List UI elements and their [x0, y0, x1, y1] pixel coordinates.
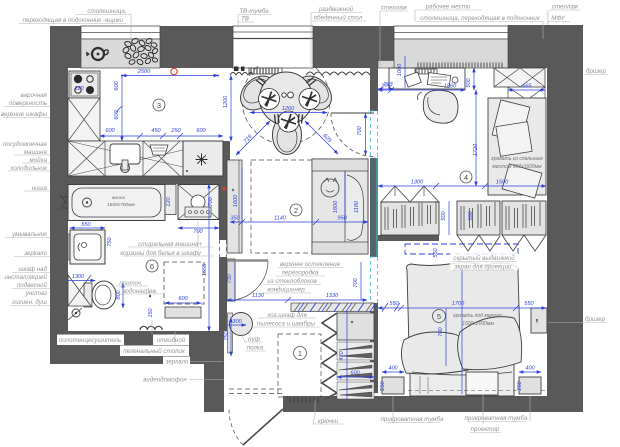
svg-text:1140: 1140 [274, 216, 287, 222]
svg-text:обеденный стол: обеденный стол [314, 15, 363, 22]
svg-text:видеодомофон: видеодомофон [143, 377, 187, 384]
svg-text:665: 665 [522, 84, 532, 90]
svg-text:250: 250 [380, 380, 386, 391]
svg-text:рабочее место: рабочее место [425, 4, 471, 11]
svg-text:кровать со спальным: кровать со спальным [491, 156, 543, 162]
svg-text:1180: 1180 [354, 200, 360, 213]
svg-text:730: 730 [227, 273, 233, 283]
svg-text:раздвижной: раздвижной [318, 6, 354, 13]
svg-text:600: 600 [196, 128, 206, 134]
svg-text:ТВ: ТВ [241, 16, 249, 23]
svg-text:700: 700 [193, 229, 203, 235]
svg-text:700: 700 [208, 196, 214, 206]
svg-text:400: 400 [388, 366, 398, 372]
svg-text:пеленальный столик: пеленальный столик [123, 348, 186, 355]
svg-text:прикроватная тумба: прикроватная тумба [465, 415, 528, 422]
svg-text:из стеклоблоков: из стеклоблоков [267, 278, 317, 285]
svg-text:4: 4 [464, 173, 468, 182]
svg-text:700: 700 [353, 277, 359, 287]
svg-text:зеркало: зеркало [165, 359, 189, 366]
svg-text:кровать под матрас: кровать под матрас [453, 313, 503, 319]
svg-text:800: 800 [116, 289, 122, 299]
svg-text:500: 500 [466, 77, 472, 87]
svg-text:шкаф над: шкаф над [18, 266, 47, 273]
svg-text:550: 550 [389, 301, 399, 307]
svg-text:950: 950 [337, 216, 347, 222]
svg-text:600: 600 [105, 128, 115, 134]
svg-text:700: 700 [438, 326, 444, 336]
svg-text:1600х700мм: 1600х700мм [107, 202, 135, 208]
svg-text:300: 300 [232, 319, 242, 325]
svg-text:600: 600 [114, 80, 120, 90]
svg-text:750: 750 [107, 236, 113, 246]
svg-text:6: 6 [150, 262, 154, 271]
svg-text:250: 250 [170, 128, 181, 134]
svg-text:550: 550 [81, 222, 91, 228]
svg-text:верхнее остекление: верхнее остекление [280, 261, 341, 268]
svg-text:откидной: откидной [157, 337, 186, 344]
svg-text:1200: 1200 [223, 95, 229, 108]
svg-text:поверхность: поверхность [9, 100, 47, 107]
svg-text:посудомоечная: посудомоечная [3, 141, 48, 148]
svg-text:450: 450 [151, 128, 161, 134]
svg-text:550: 550 [433, 247, 439, 257]
svg-text:ванна: ванна [112, 196, 125, 201]
svg-text:прикроватная тумба: прикроватная тумба [381, 416, 444, 423]
svg-text:стеллаж: стеллаж [552, 4, 579, 11]
svg-text:275: 275 [380, 84, 391, 90]
svg-text:1555: 1555 [202, 263, 208, 276]
svg-text:перегородка: перегородка [282, 270, 319, 277]
svg-text:2500: 2500 [137, 69, 151, 75]
svg-text:МФУ: МФУ [551, 15, 566, 22]
svg-text:400: 400 [525, 366, 535, 372]
svg-text:1860: 1860 [444, 84, 457, 90]
svg-text:120: 120 [74, 86, 84, 92]
svg-text:600: 600 [350, 371, 360, 377]
svg-text:2: 2 [294, 206, 298, 215]
svg-text:верхние шкафы: верхние шкафы [1, 111, 48, 118]
svg-text:стеллаж: стеллаж [381, 5, 408, 12]
svg-text:550: 550 [524, 301, 534, 307]
svg-text:700: 700 [357, 125, 363, 135]
svg-text:пылесоса и швабры: пылесоса и швабры [257, 321, 315, 328]
svg-text:варочная: варочная [21, 92, 48, 99]
svg-text:умывальник: умывальник [11, 231, 48, 238]
svg-text:350: 350 [230, 216, 240, 222]
svg-text:1300: 1300 [72, 274, 85, 280]
svg-text:1700: 1700 [452, 301, 465, 307]
svg-text:470: 470 [339, 350, 345, 360]
svg-text:полка: полка [247, 345, 264, 352]
svg-text:гигиен. душ: гигиен. душ [12, 299, 48, 306]
svg-text:проектор: проектор [471, 426, 500, 433]
svg-text:бризер: бризер [585, 316, 606, 323]
svg-text:столешница, переходящая в подо: столешница, переходящая в подоконник [420, 15, 541, 22]
svg-text:5: 5 [437, 312, 441, 321]
svg-text:бризер: бризер [586, 68, 607, 75]
svg-text:500: 500 [468, 210, 474, 220]
svg-text:1000: 1000 [397, 63, 403, 76]
svg-text:1500: 1500 [496, 180, 509, 186]
svg-text:600: 600 [114, 109, 120, 119]
svg-text:экран для проекции: экран для проекции [455, 264, 513, 271]
svg-text:250: 250 [517, 380, 523, 391]
svg-text:столешница,: столешница, [87, 8, 126, 15]
svg-text:500: 500 [441, 210, 447, 220]
svg-text:1720: 1720 [473, 143, 479, 156]
svg-text:750: 750 [224, 330, 230, 340]
svg-text:1600: 1600 [333, 200, 339, 213]
svg-text:унитаз: унитаз [25, 290, 47, 297]
svg-text:ТВ-тумба: ТВ-тумба [239, 8, 269, 15]
svg-text:1130: 1130 [252, 293, 265, 299]
svg-text:переходящая в подоконник -ящик: переходящая в подоконник -ящики [23, 17, 124, 24]
svg-text:1260: 1260 [282, 106, 295, 112]
svg-text:1300: 1300 [411, 180, 424, 186]
svg-text:инсталляцией: инсталляцией [4, 274, 47, 281]
svg-text:местом 900х1600мм: местом 900х1600мм [492, 164, 542, 170]
svg-text:зеркало: зеркало [23, 250, 47, 257]
svg-text:1330: 1330 [326, 293, 339, 299]
svg-text:скрытый выдвижной: скрытый выдвижной [453, 255, 515, 262]
svg-text:120: 120 [166, 196, 172, 206]
svg-text:600: 600 [178, 296, 188, 302]
svg-text:3: 3 [157, 101, 161, 110]
svg-text:1600х2000мм: 1600х2000мм [462, 321, 494, 327]
svg-text:подвесной: подвесной [17, 282, 48, 289]
svg-text:кондиционер: кондиционер [267, 287, 305, 294]
svg-text:1: 1 [298, 349, 302, 358]
svg-text:полотенцесушитель: полотенцесушитель [59, 337, 121, 344]
svg-text:150: 150 [148, 307, 154, 317]
svg-text:1600: 1600 [233, 194, 239, 207]
